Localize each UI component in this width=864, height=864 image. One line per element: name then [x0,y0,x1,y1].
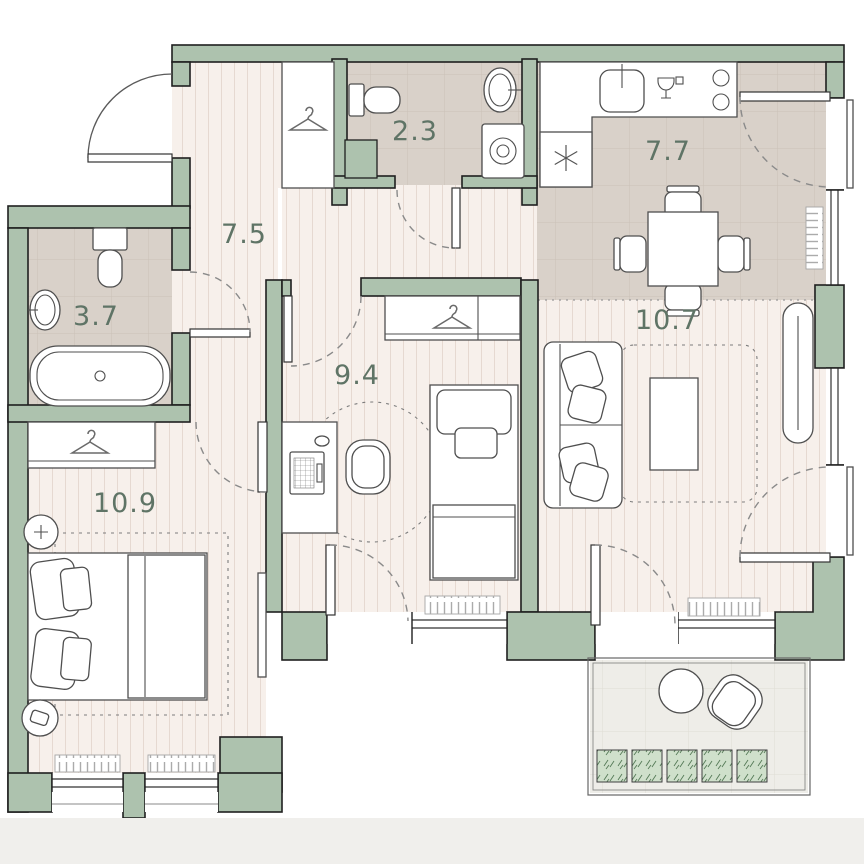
bath-threshold [172,270,190,333]
living-window-right [826,368,844,465]
hallway-floor-upper [282,188,538,280]
duct-shaft [345,140,377,178]
wall-bath-top [8,206,190,228]
kids-wardrobe [385,296,520,340]
pillow-small [455,428,497,458]
wall-kids-bottom-left [282,612,327,660]
single-bed [430,385,518,580]
fridge [540,132,592,187]
living-bottom-door-leaf [591,545,600,625]
kitchen-radiator [806,207,823,269]
wall-mirror [258,573,266,677]
room-label-kids: 9.4 [334,360,380,391]
desk-chair [346,440,390,494]
kids-balcony-door-leaf [326,545,335,615]
bath-toilet [93,228,127,287]
pillow-inner [60,637,92,681]
room-label-wc: 2.3 [392,116,438,147]
coffee-table [650,378,698,470]
kitchen-window [826,190,844,285]
kitchen-sink [600,64,644,112]
plant-box [702,750,732,782]
wall-bath-right-upper [172,228,190,270]
bedroom-window-1 [52,773,123,812]
wall-bedroom-bottom-left [8,773,52,812]
room-label-kitchen: 7.7 [645,136,691,167]
kitchen-door-leaf [740,92,830,101]
dining-table [648,212,718,286]
living-bottom-window [678,612,775,644]
pillow-inner [60,567,92,612]
wall-entry-stub-lower [172,158,190,208]
desk [282,422,337,533]
living-radiator [688,598,760,616]
wall-bedroom-window-pier [123,773,145,818]
hall-closet [282,62,334,188]
bathtub [30,346,170,406]
entry-threshold [172,86,190,158]
wall-kids-top-stub [282,280,291,296]
bedroom-radiator-2 [148,755,215,772]
planter-boxes [597,750,767,782]
wall-living-bottom-left [507,612,595,660]
bedroom-wardrobe [28,422,155,468]
floor-plan: 7.5 2.3 7.7 3.7 10.9 9.4 10.7 [0,0,864,864]
balcony-table [659,669,703,713]
blanket [433,505,515,578]
room-label-bathroom: 3.7 [73,301,119,332]
double-bed [28,553,207,700]
washing-machine [482,124,524,178]
sofa-pillow [566,383,607,424]
wall-bedroom-kids [266,280,282,612]
wall-kids-living [521,280,538,612]
juliet-railing [847,100,853,188]
mouse [315,436,329,446]
entry-door [88,74,172,162]
juliet-railing-2 [847,467,853,555]
wall-bath-right-lower [172,333,190,405]
room-label-living: 10.7 [635,305,699,336]
nightstand-top [24,515,58,549]
blanket [128,555,205,698]
floor-plan-page: 7.5 2.3 7.7 3.7 10.9 9.4 10.7 [0,0,864,864]
wall-kids-top [361,278,521,296]
wall-right-pier [815,285,844,368]
wall-bedroom-bottom-right [218,773,282,812]
sofa [544,342,622,508]
plant-box [597,750,627,782]
room-label-bedroom: 10.9 [93,488,157,519]
outside-ground [0,818,864,864]
wall-top [172,45,844,62]
room-label-hallway: 7.5 [221,219,267,250]
bedroom-radiator-1 [55,755,120,772]
kids-threshold [282,280,361,296]
plant-box [667,750,697,782]
wall-entry-stub-upper [172,62,190,86]
living-right-door-leaf [740,553,830,562]
plant-box [632,750,662,782]
tv-stand [783,303,813,443]
wall-bath-bottom [8,405,190,422]
plant-box [737,750,767,782]
kids-radiator [425,596,500,614]
nightstand-bottom [22,700,58,736]
wc-toilet [349,84,400,116]
bedroom-window-2 [145,773,218,812]
